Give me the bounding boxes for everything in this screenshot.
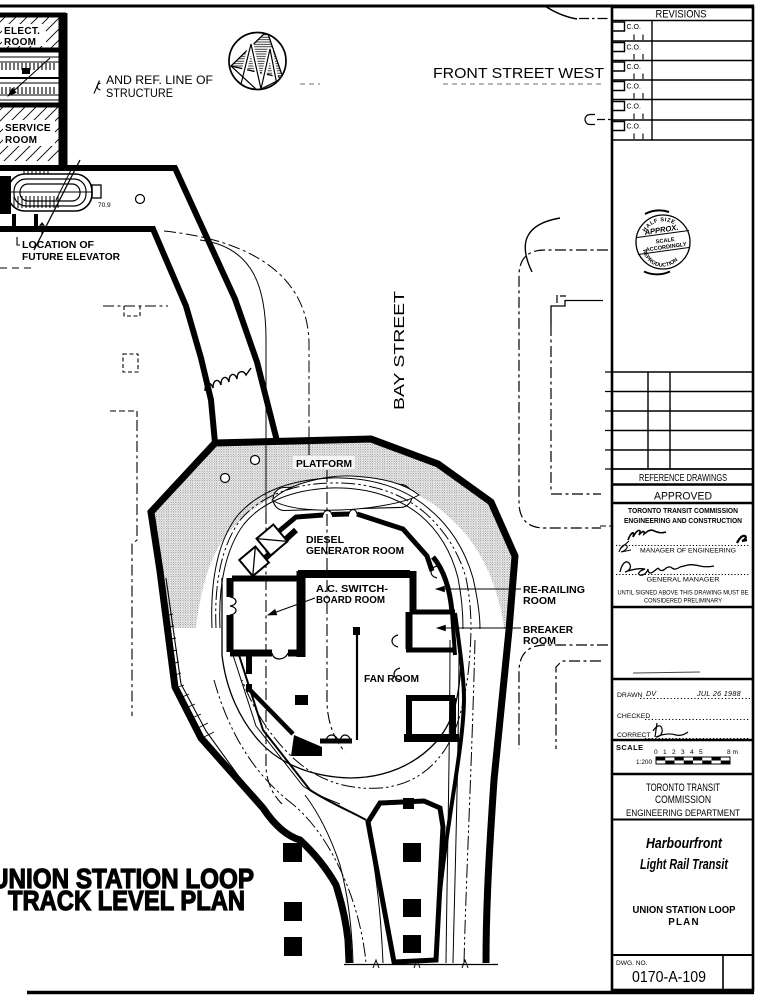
svg-text:FUTURE ELEVATOR: FUTURE ELEVATOR [22,251,120,263]
svg-text:70.9: 70.9 [98,202,111,209]
svg-text:C.O.: C.O. [627,64,641,71]
svg-text:C.O.: C.O. [627,24,641,31]
svg-text:2: 2 [672,749,676,756]
svg-text:3: 3 [681,749,685,756]
svg-text:5: 5 [699,749,703,756]
svg-text:4: 4 [690,749,694,756]
svg-text:TRACK LEVEL PLAN: TRACK LEVEL PLAN [8,885,245,916]
svg-text:1: 1 [663,749,667,756]
svg-text:CONSIDERED PRELIMINARY: CONSIDERED PRELIMINARY [644,598,723,605]
svg-text:DRAWN: DRAWN [617,692,643,699]
svg-text:C.O.: C.O. [627,104,641,111]
svg-text:REVISIONS: REVISIONS [656,9,707,21]
svg-text:A.C. SWITCH-: A.C. SWITCH- [316,584,388,595]
svg-text:C.O.: C.O. [627,84,641,91]
svg-text:GENERATOR ROOM: GENERATOR ROOM [306,546,404,557]
svg-text:SCALE: SCALE [616,743,644,752]
svg-text:BAY STREET: BAY STREET [391,291,408,410]
svg-text:DIESEL: DIESEL [306,535,344,546]
svg-text:CORRECT: CORRECT [617,732,651,739]
svg-text:ROOM: ROOM [4,37,36,48]
svg-text:RE-RAILING: RE-RAILING [523,585,585,596]
svg-text:AND REF. LINE OF: AND REF. LINE OF [106,75,213,87]
svg-text:ROOM: ROOM [523,636,556,647]
svg-text:LOCATION OF: LOCATION OF [22,239,95,251]
svg-text:DV: DV [646,689,657,698]
svg-text:TORONTO TRANSIT COMMISSION: TORONTO TRANSIT COMMISSION [628,506,738,515]
svg-text:Harbourfront: Harbourfront [646,836,723,852]
svg-text:GENERAL MANAGER: GENERAL MANAGER [647,577,720,584]
svg-text:COMMISSION: COMMISSION [655,794,711,806]
svg-text:8 m: 8 m [727,749,738,756]
svg-text:FRONT STREET WEST: FRONT STREET WEST [433,65,604,82]
svg-text:UNION STATION LOOP: UNION STATION LOOP [633,905,736,916]
svg-text:JUL 26 1988: JUL 26 1988 [696,689,741,698]
svg-text:FAN ROOM: FAN ROOM [364,674,419,685]
svg-text:TORONTO TRANSIT: TORONTO TRANSIT [646,782,720,794]
svg-text:BOARD ROOM: BOARD ROOM [316,595,385,606]
svg-text:ENGINEERING AND CONSTRUCTION: ENGINEERING AND CONSTRUCTION [624,516,742,525]
svg-text:CHECKED: CHECKED [617,713,650,720]
svg-text:0170-A-109: 0170-A-109 [632,969,706,986]
svg-text:Light Rail Transit: Light Rail Transit [640,857,729,873]
svg-text:SERVICE: SERVICE [5,123,51,134]
svg-text:ROOM: ROOM [523,596,556,607]
svg-text:0: 0 [654,749,658,756]
svg-text:STRUCTURE: STRUCTURE [106,88,173,100]
svg-text:ENGINEERING DEPARTMENT: ENGINEERING DEPARTMENT [626,808,741,818]
svg-text:ROOM: ROOM [5,135,37,146]
svg-text:APPROVED: APPROVED [654,491,712,503]
svg-text:BREAKER: BREAKER [523,625,574,636]
svg-text:PLATFORM: PLATFORM [296,458,352,470]
svg-text:1:200: 1:200 [636,759,652,766]
svg-text:C.O.: C.O. [627,45,641,52]
svg-text:DWG. NO.: DWG. NO. [616,960,648,967]
svg-text:ELECT.: ELECT. [4,26,40,37]
svg-text:PLAN: PLAN [668,917,699,928]
svg-text:REFERENCE DRAWINGS: REFERENCE DRAWINGS [639,472,727,484]
svg-text:C.O.: C.O. [627,124,641,131]
svg-text:MANAGER OF ENGINEERING: MANAGER OF ENGINEERING [640,548,736,555]
svg-text:UNTIL SIGNED ABOVE THIS DRAWIN: UNTIL SIGNED ABOVE THIS DRAWING MUST BE [618,590,750,597]
